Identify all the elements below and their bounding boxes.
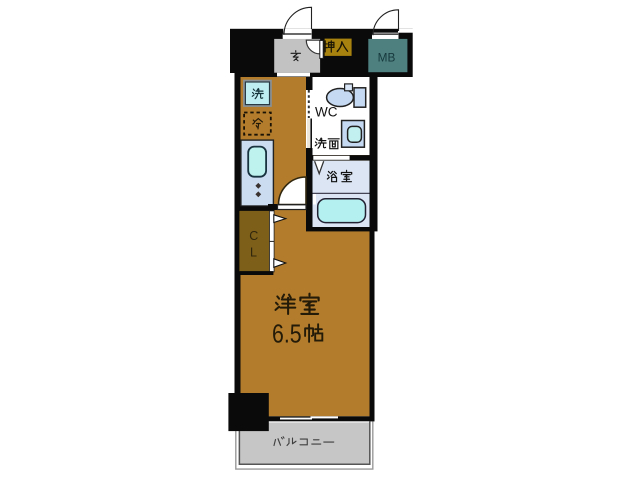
svg-text:6.5: 6.5	[272, 320, 302, 350]
svg-text:WC: WC	[315, 105, 338, 120]
svg-text:C: C	[249, 229, 258, 243]
svg-text:L: L	[250, 246, 257, 260]
svg-text:MB: MB	[378, 51, 396, 65]
